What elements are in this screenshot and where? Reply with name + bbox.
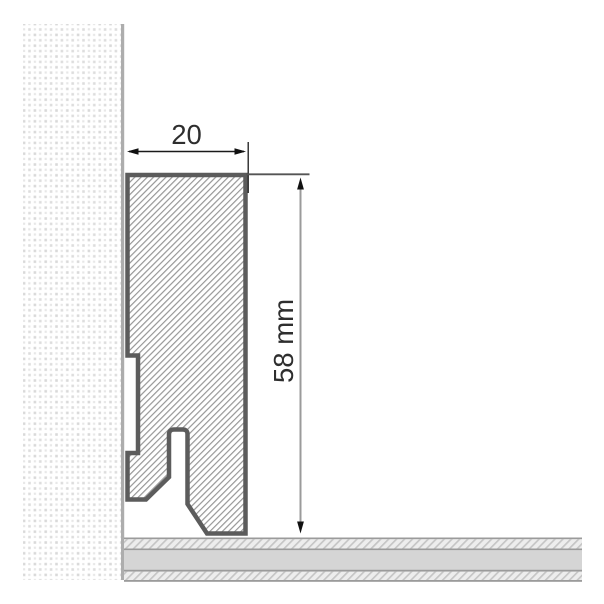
skirting-profile-diagram: 20 58 mm: [0, 0, 604, 604]
height-dimension-label: 58 mm: [268, 299, 299, 383]
skirting-board-profile: [128, 175, 246, 534]
wall-section: [23, 24, 124, 580]
height-dimension: 58 mm: [246, 174, 310, 533]
arrow-right-icon: [235, 148, 247, 155]
arrow-up-icon: [297, 178, 304, 190]
floor-divider-line-2: [124, 570, 582, 572]
floor-divider-line: [124, 549, 582, 551]
arrow-left-icon: [127, 148, 139, 155]
arrow-down-icon: [297, 522, 304, 534]
floor-section: [124, 538, 582, 582]
floor-bottom-hatch-layer: [124, 572, 582, 580]
floor-top-hatch-layer: [124, 539, 582, 548]
width-dimension-label: 20: [171, 119, 202, 150]
floor-core-layer: [124, 550, 582, 569]
wall-edge-line: [121, 24, 124, 580]
floor-top-line: [124, 538, 582, 540]
diagram-canvas: 20 58 mm: [0, 0, 604, 604]
wall-texture: [23, 24, 121, 580]
floor-bottom-line: [124, 580, 582, 582]
